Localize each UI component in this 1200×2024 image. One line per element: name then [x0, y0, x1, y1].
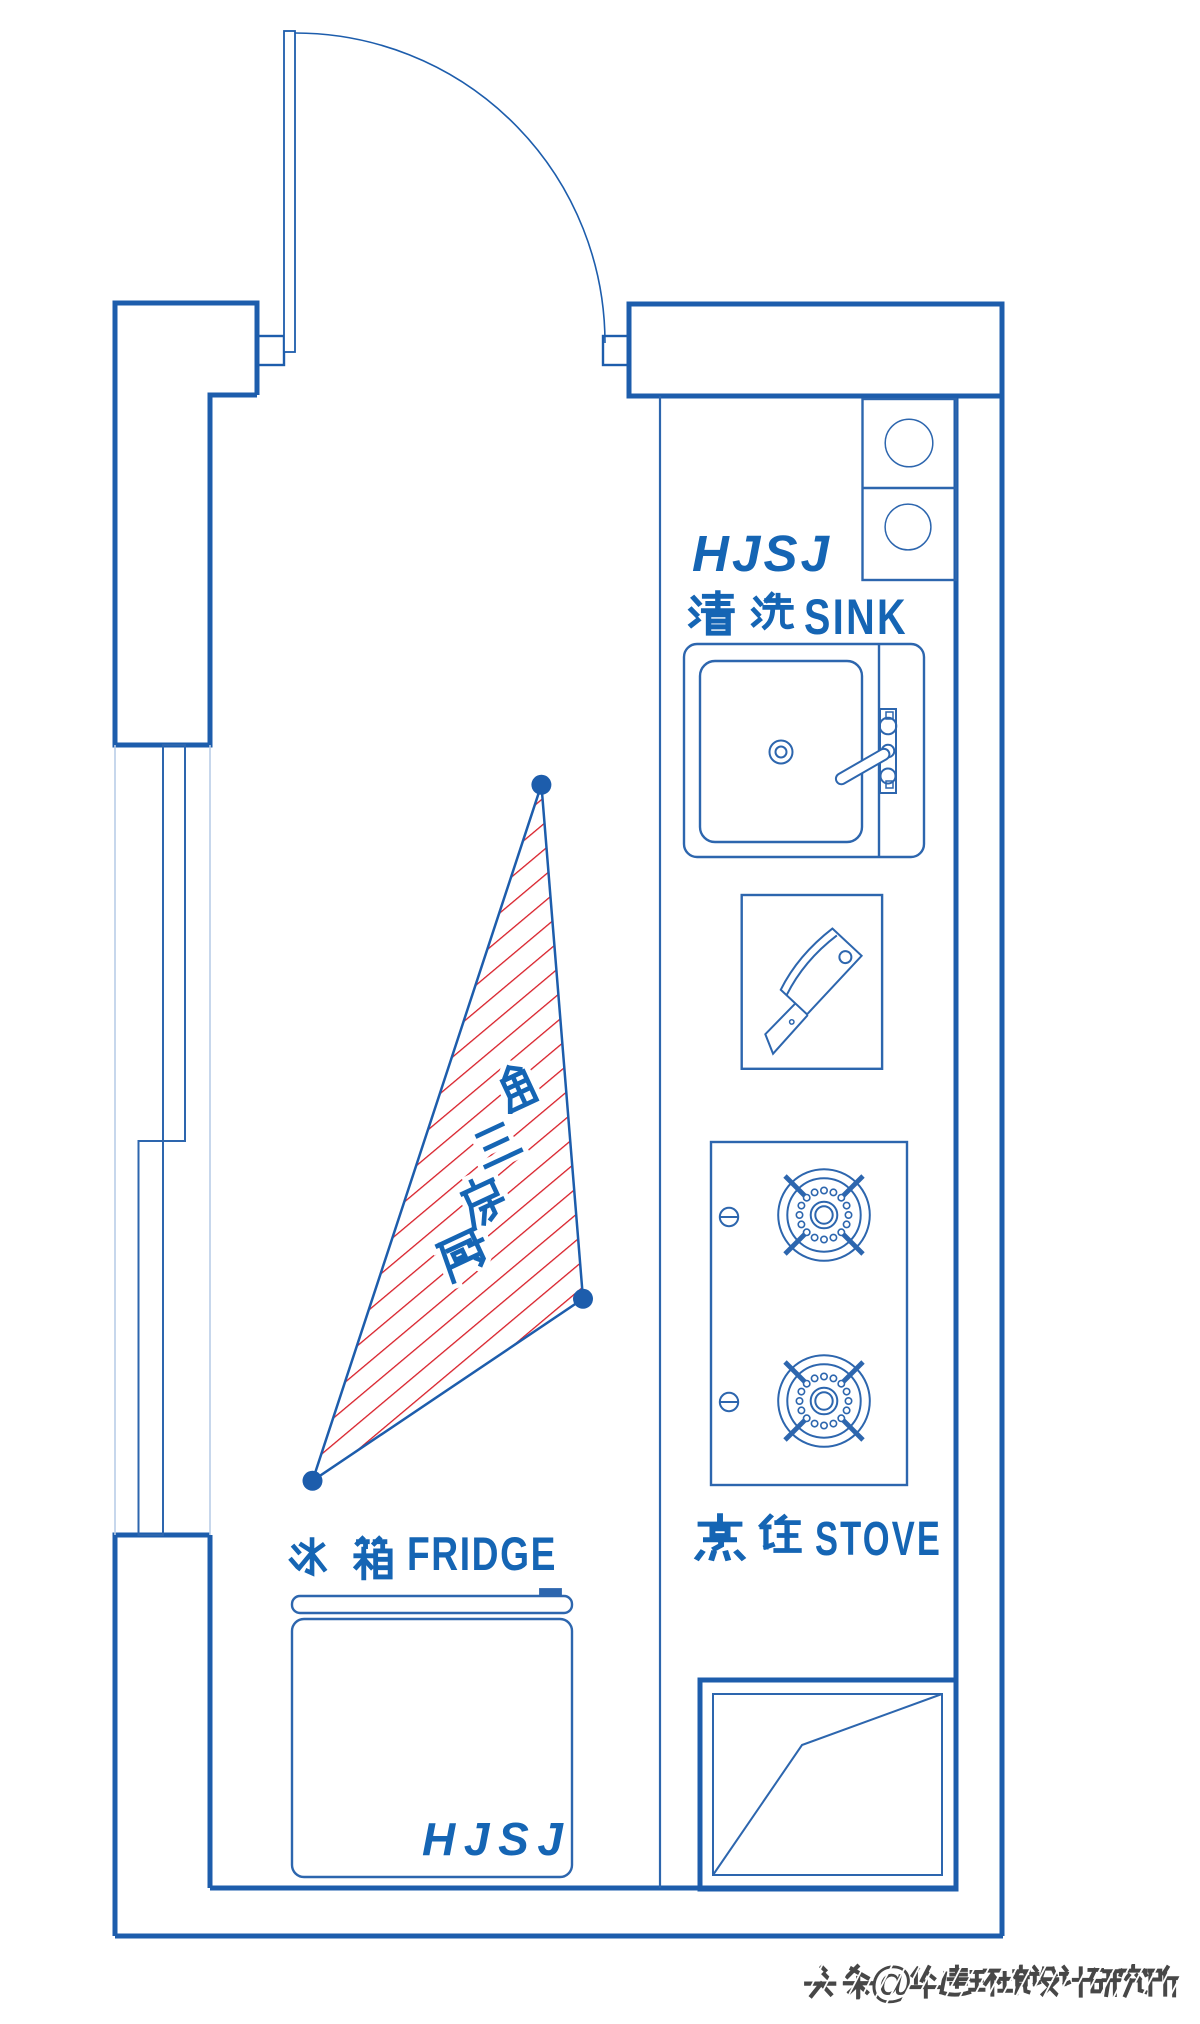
svg-text:FRIDGE: FRIDGE [407, 1527, 557, 1580]
svg-text:STOVE: STOVE [815, 1513, 942, 1566]
svg-text:SINK: SINK [804, 589, 908, 645]
